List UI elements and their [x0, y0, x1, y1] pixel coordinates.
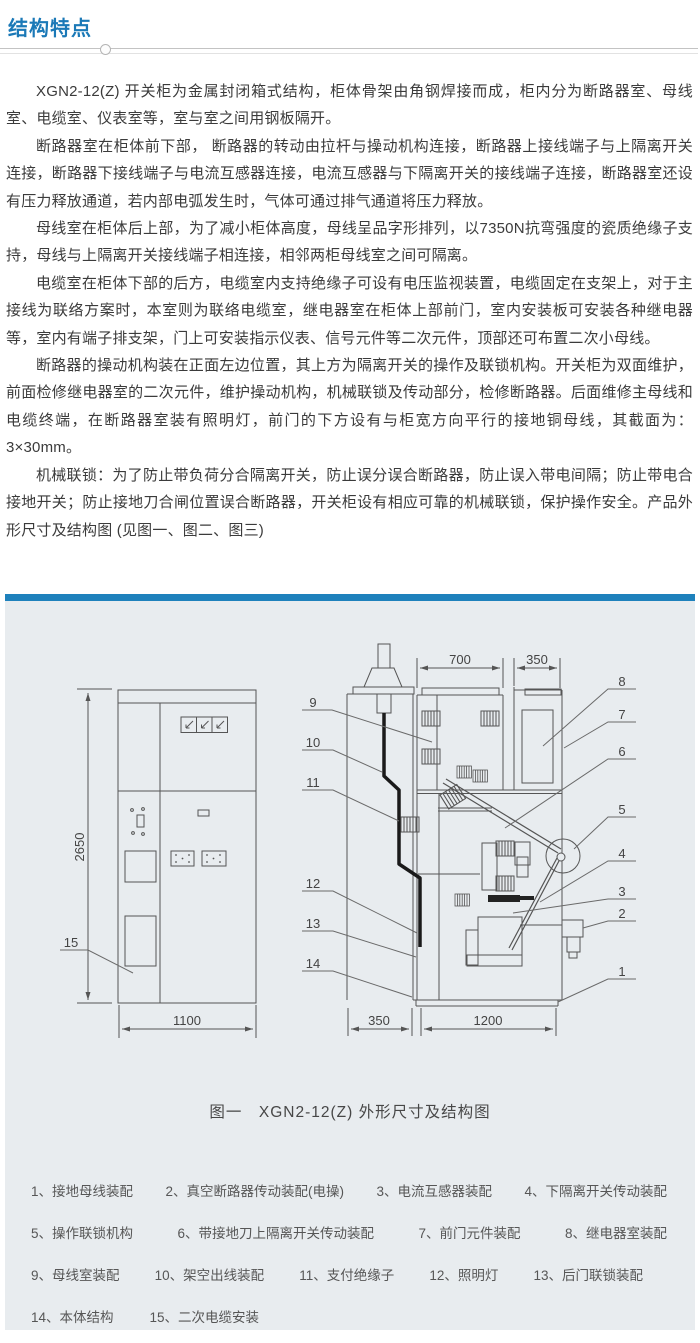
- insulator-icon: [455, 894, 469, 906]
- outgoing-cable: [384, 713, 420, 947]
- callout-9: 9: [309, 695, 316, 710]
- isolator-linkage: [443, 779, 561, 950]
- paragraph: 电缆室在柜体下部的后方，电缆室内支持绝缘子可设有电压监视装置，电缆固定在支架上，…: [6, 270, 693, 352]
- technical-drawing: 2650 1100: [5, 601, 695, 1051]
- callout-3: 3: [618, 884, 625, 899]
- meter-icon: [181, 717, 197, 733]
- divider-knob-icon: [100, 44, 111, 55]
- meter-icon: [197, 717, 213, 733]
- paragraph: 断路器室在柜体前下部， 断路器的转动由拉杆与操动机构连接，断路器上接线端子与上隔…: [6, 133, 693, 215]
- legend-item: 5、操作联锁机构: [31, 1224, 133, 1244]
- legend-row: 9、母线室装配 10、架空出线装配 11、支付绝缘子 12、照明灯 13、后门联…: [5, 1266, 695, 1286]
- callout-15: 15: [64, 935, 78, 950]
- legend-item: 11、支付绝缘子: [299, 1266, 394, 1286]
- callout-14: 14: [306, 956, 320, 971]
- insulator-icon: [422, 711, 440, 726]
- figure-panel: 2650 1100: [5, 594, 695, 1330]
- meter-icon: [212, 717, 228, 733]
- legend-row: 1、接地母线装配 2、真空断路器传动装配(电操) 3、电流互感器装配 4、下隔离…: [5, 1182, 695, 1202]
- legend-item: 3、电流互感器装配: [376, 1182, 492, 1202]
- callout-2: 2: [618, 906, 625, 921]
- insulator-icon: [422, 749, 440, 764]
- front-window: [125, 851, 156, 882]
- callout-7: 7: [618, 707, 625, 722]
- front-view: [118, 690, 256, 1003]
- handle-pivot: [557, 853, 565, 861]
- legend-item: 12、照明灯: [429, 1266, 498, 1286]
- legend-item: 8、继电器室装配: [565, 1224, 667, 1244]
- legend-item: 14、本体结构: [31, 1308, 114, 1328]
- side-dimensions: [348, 658, 560, 1036]
- paragraph: XGN2-12(Z) 开关柜为金属封闭箱式结构，柜体骨架由角钢焊接而成，柜内分为…: [6, 78, 693, 133]
- bushing-insulator: [353, 644, 414, 713]
- callout-4: 4: [618, 846, 625, 861]
- legend-item: 15、二次电缆安装: [150, 1308, 260, 1328]
- legend-item: 13、后门联锁装配: [533, 1266, 643, 1286]
- dim-bottom-rear-depth: 350: [368, 1013, 390, 1028]
- dim-front-height: 2650: [72, 833, 87, 862]
- nameplate: [202, 851, 226, 866]
- page-title: 结构特点: [0, 0, 700, 41]
- dim-top-main-depth: 700: [449, 652, 471, 667]
- callout-13: 13: [306, 916, 320, 931]
- panel-accent-bar: [5, 594, 695, 601]
- relay-room-box: [522, 710, 553, 783]
- electric-operator-box: [520, 920, 583, 958]
- label-plate: [198, 810, 209, 816]
- front-window: [125, 916, 156, 966]
- legend-item: 9、母线室装配: [31, 1266, 120, 1286]
- insulator-icon: [496, 876, 514, 891]
- figure-caption: 图一 XGN2-12(Z) 外形尺寸及结构图: [5, 1100, 695, 1122]
- callout-6: 6: [618, 744, 625, 759]
- side-view: [347, 644, 583, 1006]
- callout-5: 5: [618, 802, 625, 817]
- breaker-assembly: [466, 842, 534, 966]
- insulator-icon: [496, 841, 514, 856]
- callout-11: 11: [306, 775, 320, 790]
- legend-item: 4、下隔离开关传动装配: [524, 1182, 667, 1202]
- paragraph: 母线室在柜体后上部，为了减小柜体高度，母线呈品字形排列，以7350N抗弯强度的瓷…: [6, 215, 693, 270]
- body-text: XGN2-12(Z) 开关柜为金属封闭箱式结构，柜体骨架由角钢焊接而成，柜内分为…: [0, 54, 700, 544]
- legend-item: 6、带接地刀上隔离开关传动装配: [177, 1224, 374, 1244]
- nameplate: [171, 851, 194, 866]
- legend-item: 7、前门元件装配: [418, 1224, 520, 1244]
- callout-12: 12: [306, 876, 320, 891]
- paragraph: 机械联锁：为了防止带负荷分合隔离开关，防止误分误合断路器，防止误入带电间隔；防止…: [6, 462, 693, 544]
- title-divider: [0, 48, 698, 54]
- insulator-icon: [457, 766, 471, 778]
- dim-front-width: 1100: [173, 1013, 201, 1028]
- callout-numbers: 15 9 10 11 12 13 14 8 7 6 5 4 3 2 1: [64, 674, 626, 979]
- front-dimensions: [77, 689, 256, 1038]
- legend-item: 10、架空出线装配: [155, 1266, 265, 1286]
- dim-bottom-main-depth: 1200: [474, 1013, 503, 1028]
- callout-10: 10: [306, 735, 320, 750]
- insulator-icon: [481, 711, 499, 726]
- legend-row: 14、本体结构 15、二次电缆安装: [5, 1308, 695, 1328]
- insulator-icon: [473, 770, 487, 782]
- paragraph: 断路器的操动机构装在正面左边位置，其上方为隔离开关的操作及联锁机构。开关柜为双面…: [6, 352, 693, 462]
- legend-item: 1、接地母线装配: [31, 1182, 133, 1202]
- door-lock-detail: [131, 808, 145, 836]
- parts-legend: 1、接地母线装配 2、真空断路器传动装配(电操) 3、电流互感器装配 4、下隔离…: [5, 1160, 695, 1328]
- legend-item: 2、真空断路器传动装配(电操): [166, 1182, 345, 1202]
- insulator-icon: [401, 817, 419, 832]
- catalog-page: 结构特点 XGN2-12(Z) 开关柜为金属封闭箱式结构，柜体骨架由角钢焊接而成…: [0, 0, 700, 1343]
- legend-row: 5、操作联锁机构 6、带接地刀上隔离开关传动装配 7、前门元件装配 8、继电器室…: [5, 1224, 695, 1244]
- callout-8: 8: [618, 674, 625, 689]
- dim-top-relay-depth: 350: [526, 652, 548, 667]
- callout-1: 1: [618, 964, 625, 979]
